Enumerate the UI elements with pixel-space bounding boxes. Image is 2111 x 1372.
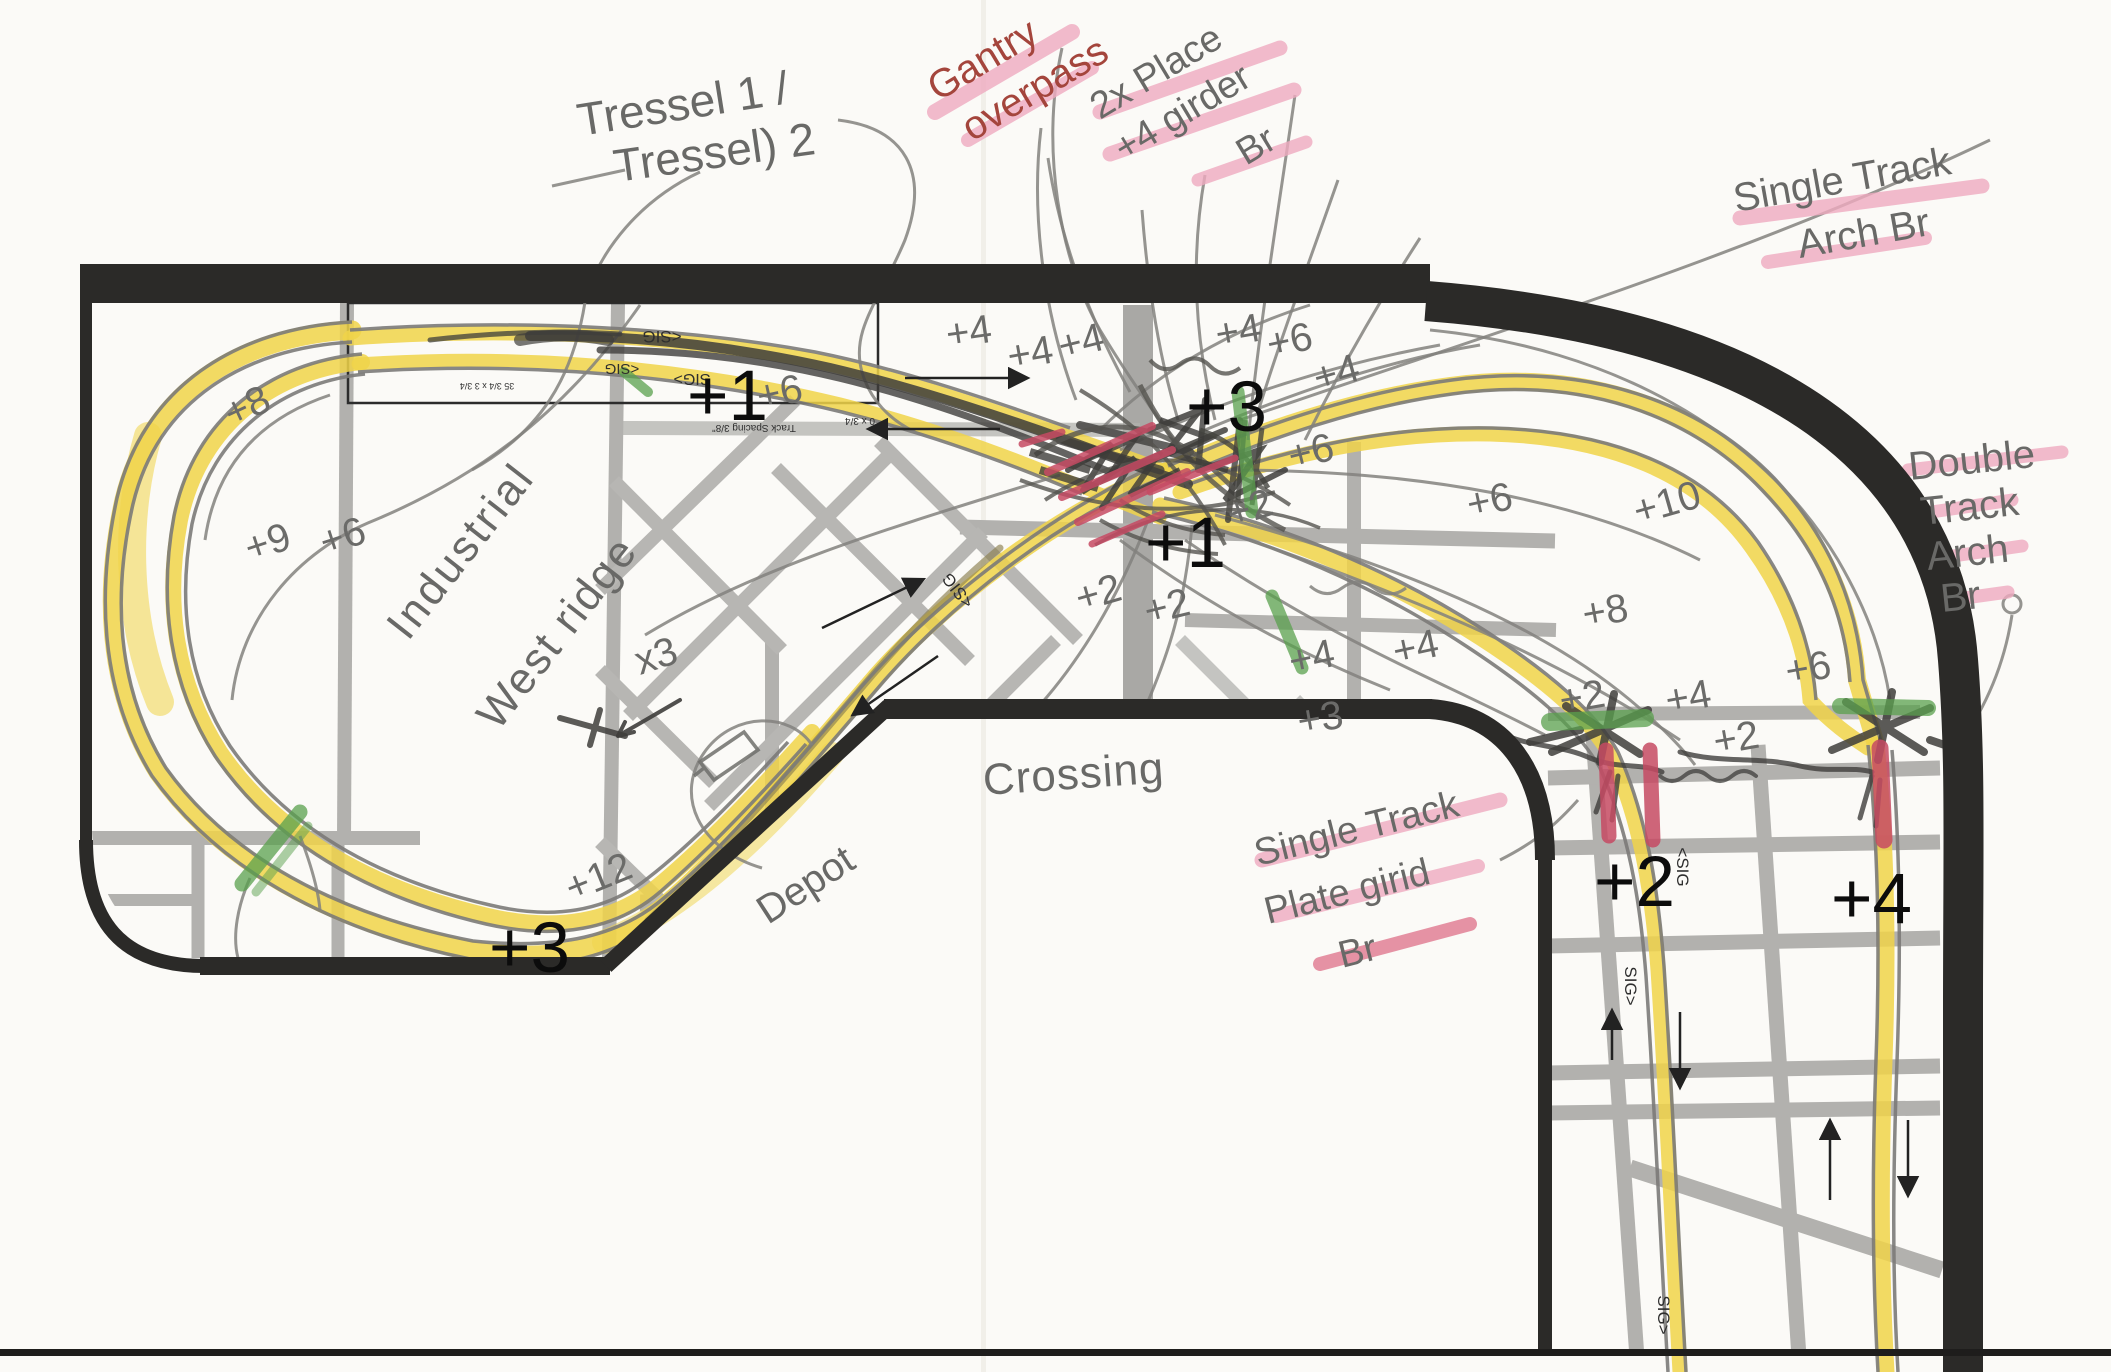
svg-text:+6: +6 — [1782, 643, 1835, 694]
svg-text:+4: +4 — [1831, 860, 1912, 939]
svg-text:+1: +1 — [687, 357, 768, 436]
svg-text:+1: +1 — [1145, 504, 1226, 583]
svg-text:<SIG: <SIG — [1673, 847, 1692, 886]
svg-text:+4: +4 — [1662, 672, 1715, 723]
svg-text:+4: +4 — [1212, 306, 1265, 357]
svg-text:35 3/4 x 3 3/4: 35 3/4 x 3 3/4 — [460, 381, 515, 391]
svg-text:+3: +3 — [489, 909, 570, 988]
svg-text:+6: +6 — [1463, 474, 1517, 527]
svg-text:+2: +2 — [1556, 672, 1609, 723]
svg-text:+4: +4 — [943, 307, 994, 357]
svg-text:+2: +2 — [1710, 713, 1763, 764]
svg-text:<SIG: <SIG — [642, 327, 681, 346]
svg-text:+8: +8 — [1579, 586, 1632, 637]
svg-text:SIG>: SIG> — [1621, 966, 1640, 1005]
svg-text:+3: +3 — [1294, 693, 1347, 744]
svg-text:<SIG: <SIG — [605, 360, 640, 377]
svg-text:+2: +2 — [1594, 843, 1675, 922]
svg-text:+3: +3 — [1186, 368, 1267, 447]
svg-text:SIG>: SIG> — [1654, 1295, 1673, 1334]
svg-text:+4: +4 — [1285, 631, 1339, 684]
svg-text:Br: Br — [1938, 573, 1982, 621]
svg-text:0 x 3/4: 0 x 3/4 — [845, 415, 875, 426]
svg-text:+4: +4 — [1004, 328, 1057, 379]
svg-text:+4: +4 — [1389, 621, 1443, 674]
svg-text:Arch: Arch — [1924, 527, 2010, 579]
